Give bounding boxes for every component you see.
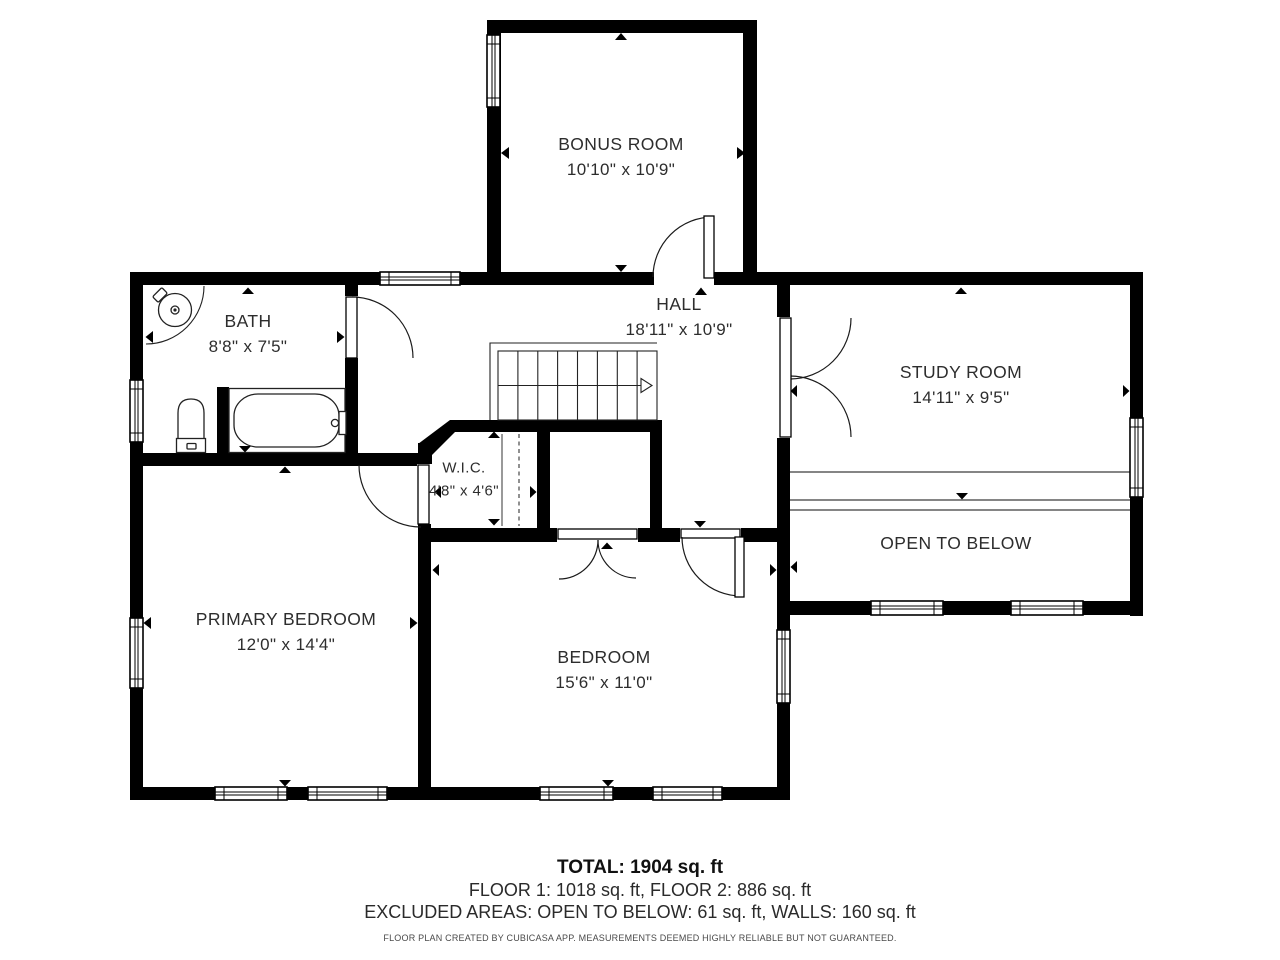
sink-icon xyxy=(153,288,192,327)
door-icon-bedroom-single xyxy=(680,527,744,597)
room-dimensions: 4'8" x 4'6" xyxy=(429,480,499,503)
room-name: STUDY ROOM xyxy=(900,359,1022,385)
room-dimensions: 12'0" x 14'4" xyxy=(196,632,376,658)
disclaimer-text: FLOOR PLAN CREATED BY CUBICASA APP. MEAS… xyxy=(0,933,1280,943)
room-label-primary-bedroom: PRIMARY BEDROOM 12'0" x 14'4" xyxy=(196,606,376,658)
window-icon xyxy=(777,630,790,703)
window-icon xyxy=(653,787,722,800)
door-icon-wic xyxy=(359,464,432,527)
room-label-hall: HALL 18'11" x 10'9" xyxy=(625,291,732,343)
room-label-bath: BATH 8'8" x 7'5" xyxy=(209,308,288,360)
stairs-icon xyxy=(490,343,657,420)
room-label-bedroom: BEDROOM 15'6" x 11'0" xyxy=(555,644,652,696)
room-dimensions: 14'11" x 9'5" xyxy=(900,385,1022,411)
room-dimensions: 8'8" x 7'5" xyxy=(209,334,288,360)
floor-areas-text: FLOOR 1: 1018 sq. ft, FLOOR 2: 886 sq. f… xyxy=(0,879,1280,901)
room-label-study-room: STUDY ROOM 14'11" x 9'5" xyxy=(900,359,1022,411)
room-name: W.I.C. xyxy=(429,458,499,481)
bathtub-icon xyxy=(229,389,346,453)
total-area-text: TOTAL: 1904 sq. ft xyxy=(0,856,1280,879)
room-name: BONUS ROOM xyxy=(558,131,684,157)
room-dimensions: 18'11" x 10'9" xyxy=(625,317,732,343)
room-name: PRIMARY BEDROOM xyxy=(196,606,376,632)
window-icon xyxy=(540,787,613,800)
room-label-wic: W.I.C. 4'8" x 4'6" xyxy=(429,458,499,503)
area-summary: TOTAL: 1904 sq. ft FLOOR 1: 1018 sq. ft,… xyxy=(0,856,1280,943)
closet-rod-lines xyxy=(502,434,519,526)
window-icon xyxy=(380,272,460,285)
window-icon xyxy=(130,380,143,442)
room-label-bonus-room: BONUS ROOM 10'10" x 10'9" xyxy=(558,131,684,183)
door-icon-bonus xyxy=(653,216,714,286)
window-icon xyxy=(1130,418,1143,497)
window-icon xyxy=(871,601,943,615)
window-icon xyxy=(308,787,387,800)
window-icon xyxy=(487,35,500,107)
room-label-open-to-below: OPEN TO BELOW xyxy=(880,530,1031,556)
room-name: BATH xyxy=(209,308,288,334)
window-icon xyxy=(215,787,287,800)
window-icon xyxy=(1011,601,1083,615)
room-dimensions: 15'6" x 11'0" xyxy=(555,670,652,696)
room-name: HALL xyxy=(625,291,732,317)
excluded-areas-text: EXCLUDED AREAS: OPEN TO BELOW: 61 sq. ft… xyxy=(0,901,1280,923)
room-dimensions: 10'10" x 10'9" xyxy=(558,157,684,183)
floor-plan-page: BONUS ROOM 10'10" x 10'9" BATH 8'8" x 7'… xyxy=(0,0,1280,960)
door-icon-bedroom-double xyxy=(557,527,638,579)
railing-lines xyxy=(790,472,1130,510)
room-name: OPEN TO BELOW xyxy=(880,530,1031,556)
room-name: BEDROOM xyxy=(555,644,652,670)
door-icon-bath xyxy=(344,296,413,358)
toilet-icon xyxy=(177,399,206,453)
door-icon-study-double xyxy=(776,317,851,438)
window-icon xyxy=(130,618,143,688)
